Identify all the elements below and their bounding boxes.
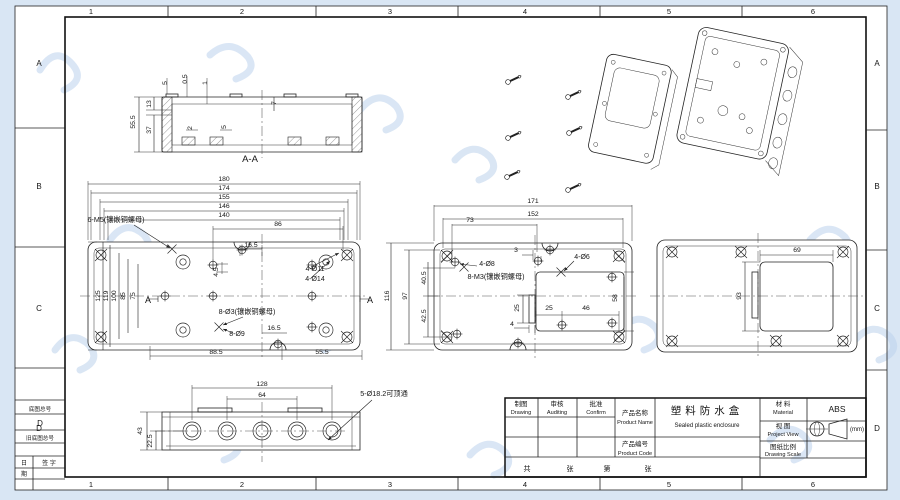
dim-label: 88.5 — [209, 349, 222, 356]
dim-label: 64 — [258, 392, 266, 399]
zone-column-number: 3 — [388, 480, 392, 489]
drafter-label-cn: 制图 — [515, 399, 528, 408]
dim-label: 152 — [527, 211, 539, 218]
footer-sheet: 张 — [567, 464, 574, 473]
footer-sheet2: 张 — [645, 464, 652, 473]
dim-label: 22.5 — [147, 434, 154, 447]
projection-label-cn: 视 图 — [776, 421, 791, 430]
engineering-drawing-sheet: 112233445566AABBCCDD 底图总号 D 旧底图总号 日 期 签 … — [0, 0, 900, 500]
section-title: A-A — [242, 154, 259, 165]
product-code-label-cn: 产品编号 — [622, 439, 649, 448]
dim-label: 93 — [736, 292, 743, 300]
dim-label: 43 — [137, 427, 144, 435]
dim-label: 97 — [402, 292, 409, 300]
zone-column-number: 3 — [388, 7, 392, 16]
dim-label: 73 — [466, 217, 474, 224]
zone-row-letter: B — [36, 182, 41, 191]
dim-label: 86 — [274, 221, 282, 228]
archive-number-label: 底图总号 — [29, 405, 52, 413]
dim-label: 4-Ø14 — [305, 276, 325, 283]
dim-label: 13 — [146, 100, 153, 108]
dim-label: 3 — [514, 247, 518, 254]
old-archive-number-label: 旧底图总号 — [26, 434, 54, 442]
dim-label: 55.5 — [130, 115, 137, 128]
dim-label: 25 — [514, 304, 521, 312]
dim-label: 75 — [130, 292, 137, 300]
dim-label: 58 — [612, 294, 619, 302]
dim-label: 4-Ø6 — [574, 254, 590, 261]
zone-column-number: 6 — [811, 7, 815, 16]
zone-row-letter: C — [36, 304, 42, 313]
dim-label: 5 — [221, 125, 228, 129]
dim-label: 116 — [384, 290, 391, 301]
zone-column-number: 6 — [811, 480, 815, 489]
auditor-label-en: Auditing — [547, 410, 567, 416]
dim-label: 4 — [510, 321, 514, 328]
product-name-label-cn: 产品名称 — [622, 408, 649, 417]
dim-label: 119 — [103, 290, 110, 301]
projection-label-en: Project View — [768, 432, 800, 438]
dim-label: 69 — [793, 247, 801, 254]
auditor-label-cn: 审核 — [551, 399, 565, 408]
product-name-value-cn: 塑料防水盒 — [671, 404, 744, 417]
note-insert-m5: 6-M5(镶嵌铜螺母) — [87, 215, 144, 224]
zone-column-number: 2 — [240, 480, 244, 489]
dim-label: 16.5 — [244, 242, 257, 249]
drawing-canvas: 112233445566AABBCCDD 底图总号 D 旧底图总号 日 期 签 … — [0, 0, 900, 500]
signature-label: 签 字 — [42, 459, 56, 467]
dim-label: 4-Ø8 — [479, 261, 495, 268]
section-arrow-label: A — [367, 295, 373, 305]
dim-label: 2 — [187, 126, 194, 130]
product-name-label-en: Product Name — [617, 420, 653, 426]
dim-label: 155 — [218, 194, 230, 201]
dim-label: 16.5 — [267, 325, 280, 332]
dim-label: 25 — [545, 305, 553, 312]
footer-total: 共 — [524, 464, 531, 473]
dim-label: 8-Ø9 — [229, 331, 245, 338]
dim-label: 37 — [146, 126, 153, 134]
zone-column-number: 1 — [89, 480, 93, 489]
dim-label: 128 — [256, 381, 268, 388]
product-name-value-en: Sealed plastic enclosure — [674, 423, 740, 429]
zone-column-number: 1 — [89, 7, 93, 16]
view-lid-outside — [650, 233, 864, 359]
zone-column-number: 5 — [667, 7, 671, 16]
zone-column-number: 4 — [523, 480, 527, 489]
unit-label: (mm) — [850, 427, 864, 433]
material-label-cn: 材 料 — [776, 399, 791, 408]
approver-label-en: Confirm — [586, 410, 606, 416]
zone-column-number: 4 — [523, 7, 527, 16]
dim-label: 140 — [218, 212, 230, 219]
dim-label: 5 — [162, 81, 169, 85]
dim-label: 125 — [95, 290, 102, 302]
date-label-day: 日 — [21, 460, 27, 467]
dim-label: 4-Ø11 — [306, 266, 325, 273]
archive-number-value: D — [37, 419, 43, 428]
zone-row-letter: A — [874, 59, 880, 68]
material-label-en: Material — [773, 410, 793, 416]
scale-label-cn: 图纸比例 — [770, 442, 796, 451]
dim-label: 42.5 — [421, 309, 428, 322]
drafter-label-en: Drawing — [511, 410, 532, 416]
dim-label: 46 — [582, 305, 590, 312]
zone-row-letter: C — [874, 304, 880, 313]
zone-column-number: 5 — [667, 480, 671, 489]
scale-label-en: Drawing Scale — [765, 452, 801, 458]
zone-row-letter: D — [874, 424, 880, 433]
dim-label: 180 — [218, 176, 230, 183]
note-knockout: 5-Ø18.2可顶通 — [360, 389, 408, 398]
dim-label: 171 — [527, 198, 539, 205]
product-code-label-en: Product Code — [618, 451, 652, 457]
dim-label: 40.5 — [421, 271, 428, 284]
material-value: ABS — [828, 404, 845, 414]
note-insert-m3: 8-Ø3(镶嵌铜螺母) — [219, 307, 276, 316]
dim-label: 174 — [218, 185, 230, 192]
dim-label: 0.5 — [182, 74, 189, 84]
section-arrow-label: A — [145, 295, 151, 305]
dim-label: 85 — [120, 292, 127, 300]
zone-column-number: 2 — [240, 7, 244, 16]
approver-label-cn: 批准 — [590, 399, 604, 408]
dim-label: 146 — [218, 203, 230, 210]
dim-label: 7 — [271, 101, 278, 105]
dim-label: 55.5 — [315, 349, 328, 356]
dim-label: 4.5 — [213, 267, 220, 277]
dim-label: 1 — [202, 81, 209, 85]
zone-row-letter: B — [874, 182, 879, 191]
dim-label: 100 — [111, 290, 118, 302]
footer-number: 第 — [604, 464, 611, 473]
date-label-period: 期 — [21, 470, 27, 478]
zone-row-letter: A — [36, 59, 42, 68]
note-insert-m3-mid: 8-M3(镶嵌铜螺母) — [467, 272, 524, 281]
